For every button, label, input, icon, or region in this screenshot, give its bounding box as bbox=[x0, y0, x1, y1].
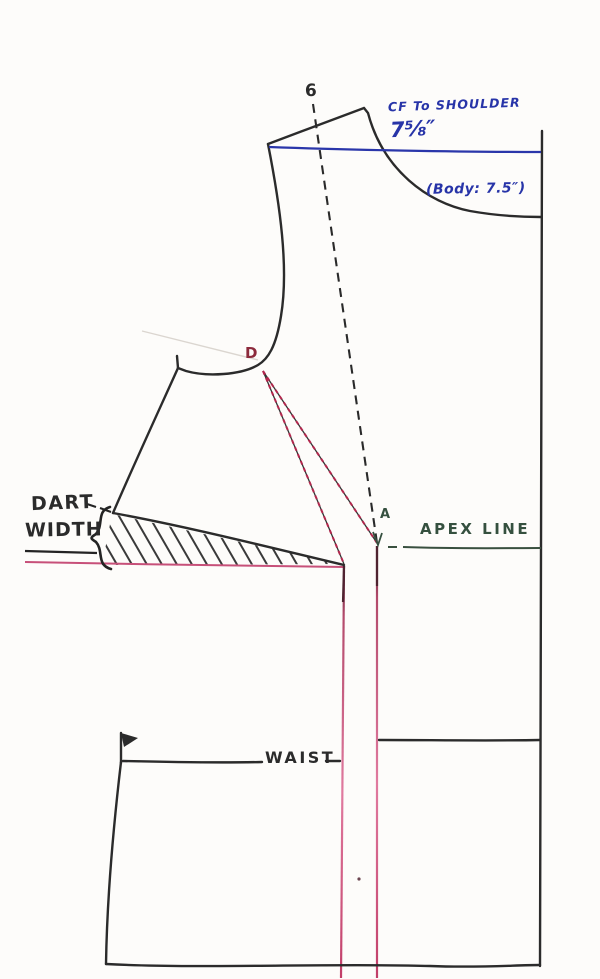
side-seam-upper bbox=[113, 368, 178, 513]
point-label-a: A bbox=[380, 508, 390, 521]
dart-hatching bbox=[102, 514, 342, 565]
dart-width-label-line1: DART bbox=[31, 493, 95, 514]
waist-line-left bbox=[123, 761, 262, 762]
underarm-notch bbox=[177, 356, 178, 368]
width-underline bbox=[25, 551, 97, 553]
waist-corner-flag bbox=[121, 733, 138, 747]
dart-width-label-line2: WIDTH bbox=[25, 520, 103, 540]
cf-measurement-label: 7⅝″ bbox=[389, 118, 436, 141]
point-label-6: 6 bbox=[305, 83, 317, 100]
shoulder-seam bbox=[268, 108, 364, 144]
apex-line bbox=[388, 547, 541, 548]
pattern-linework bbox=[0, 0, 600, 979]
dart-transfer-lines bbox=[263, 371, 377, 564]
side-seam-lower bbox=[106, 762, 121, 964]
apex-line-label: APEX LINE bbox=[420, 522, 530, 537]
armhole-curve bbox=[178, 144, 284, 374]
dart-leg-extension-left bbox=[341, 566, 344, 978]
stray-dot bbox=[357, 877, 360, 880]
hem-line bbox=[106, 964, 540, 967]
pattern-diagram: 6 CF To SHOULDER 7⅝″ (Body: 7.5″) D A AP… bbox=[0, 0, 600, 979]
waist-label: WAIST bbox=[265, 750, 335, 766]
cf-to-shoulder-measure-line bbox=[269, 147, 541, 152]
faint-pencil-line bbox=[142, 331, 258, 360]
dart-leg-extension-left-dark-top bbox=[343, 566, 344, 602]
dashed-guide-line bbox=[313, 104, 377, 543]
body-measurement-label: (Body: 7.5″) bbox=[426, 181, 526, 197]
point-label-d: D bbox=[245, 346, 257, 361]
